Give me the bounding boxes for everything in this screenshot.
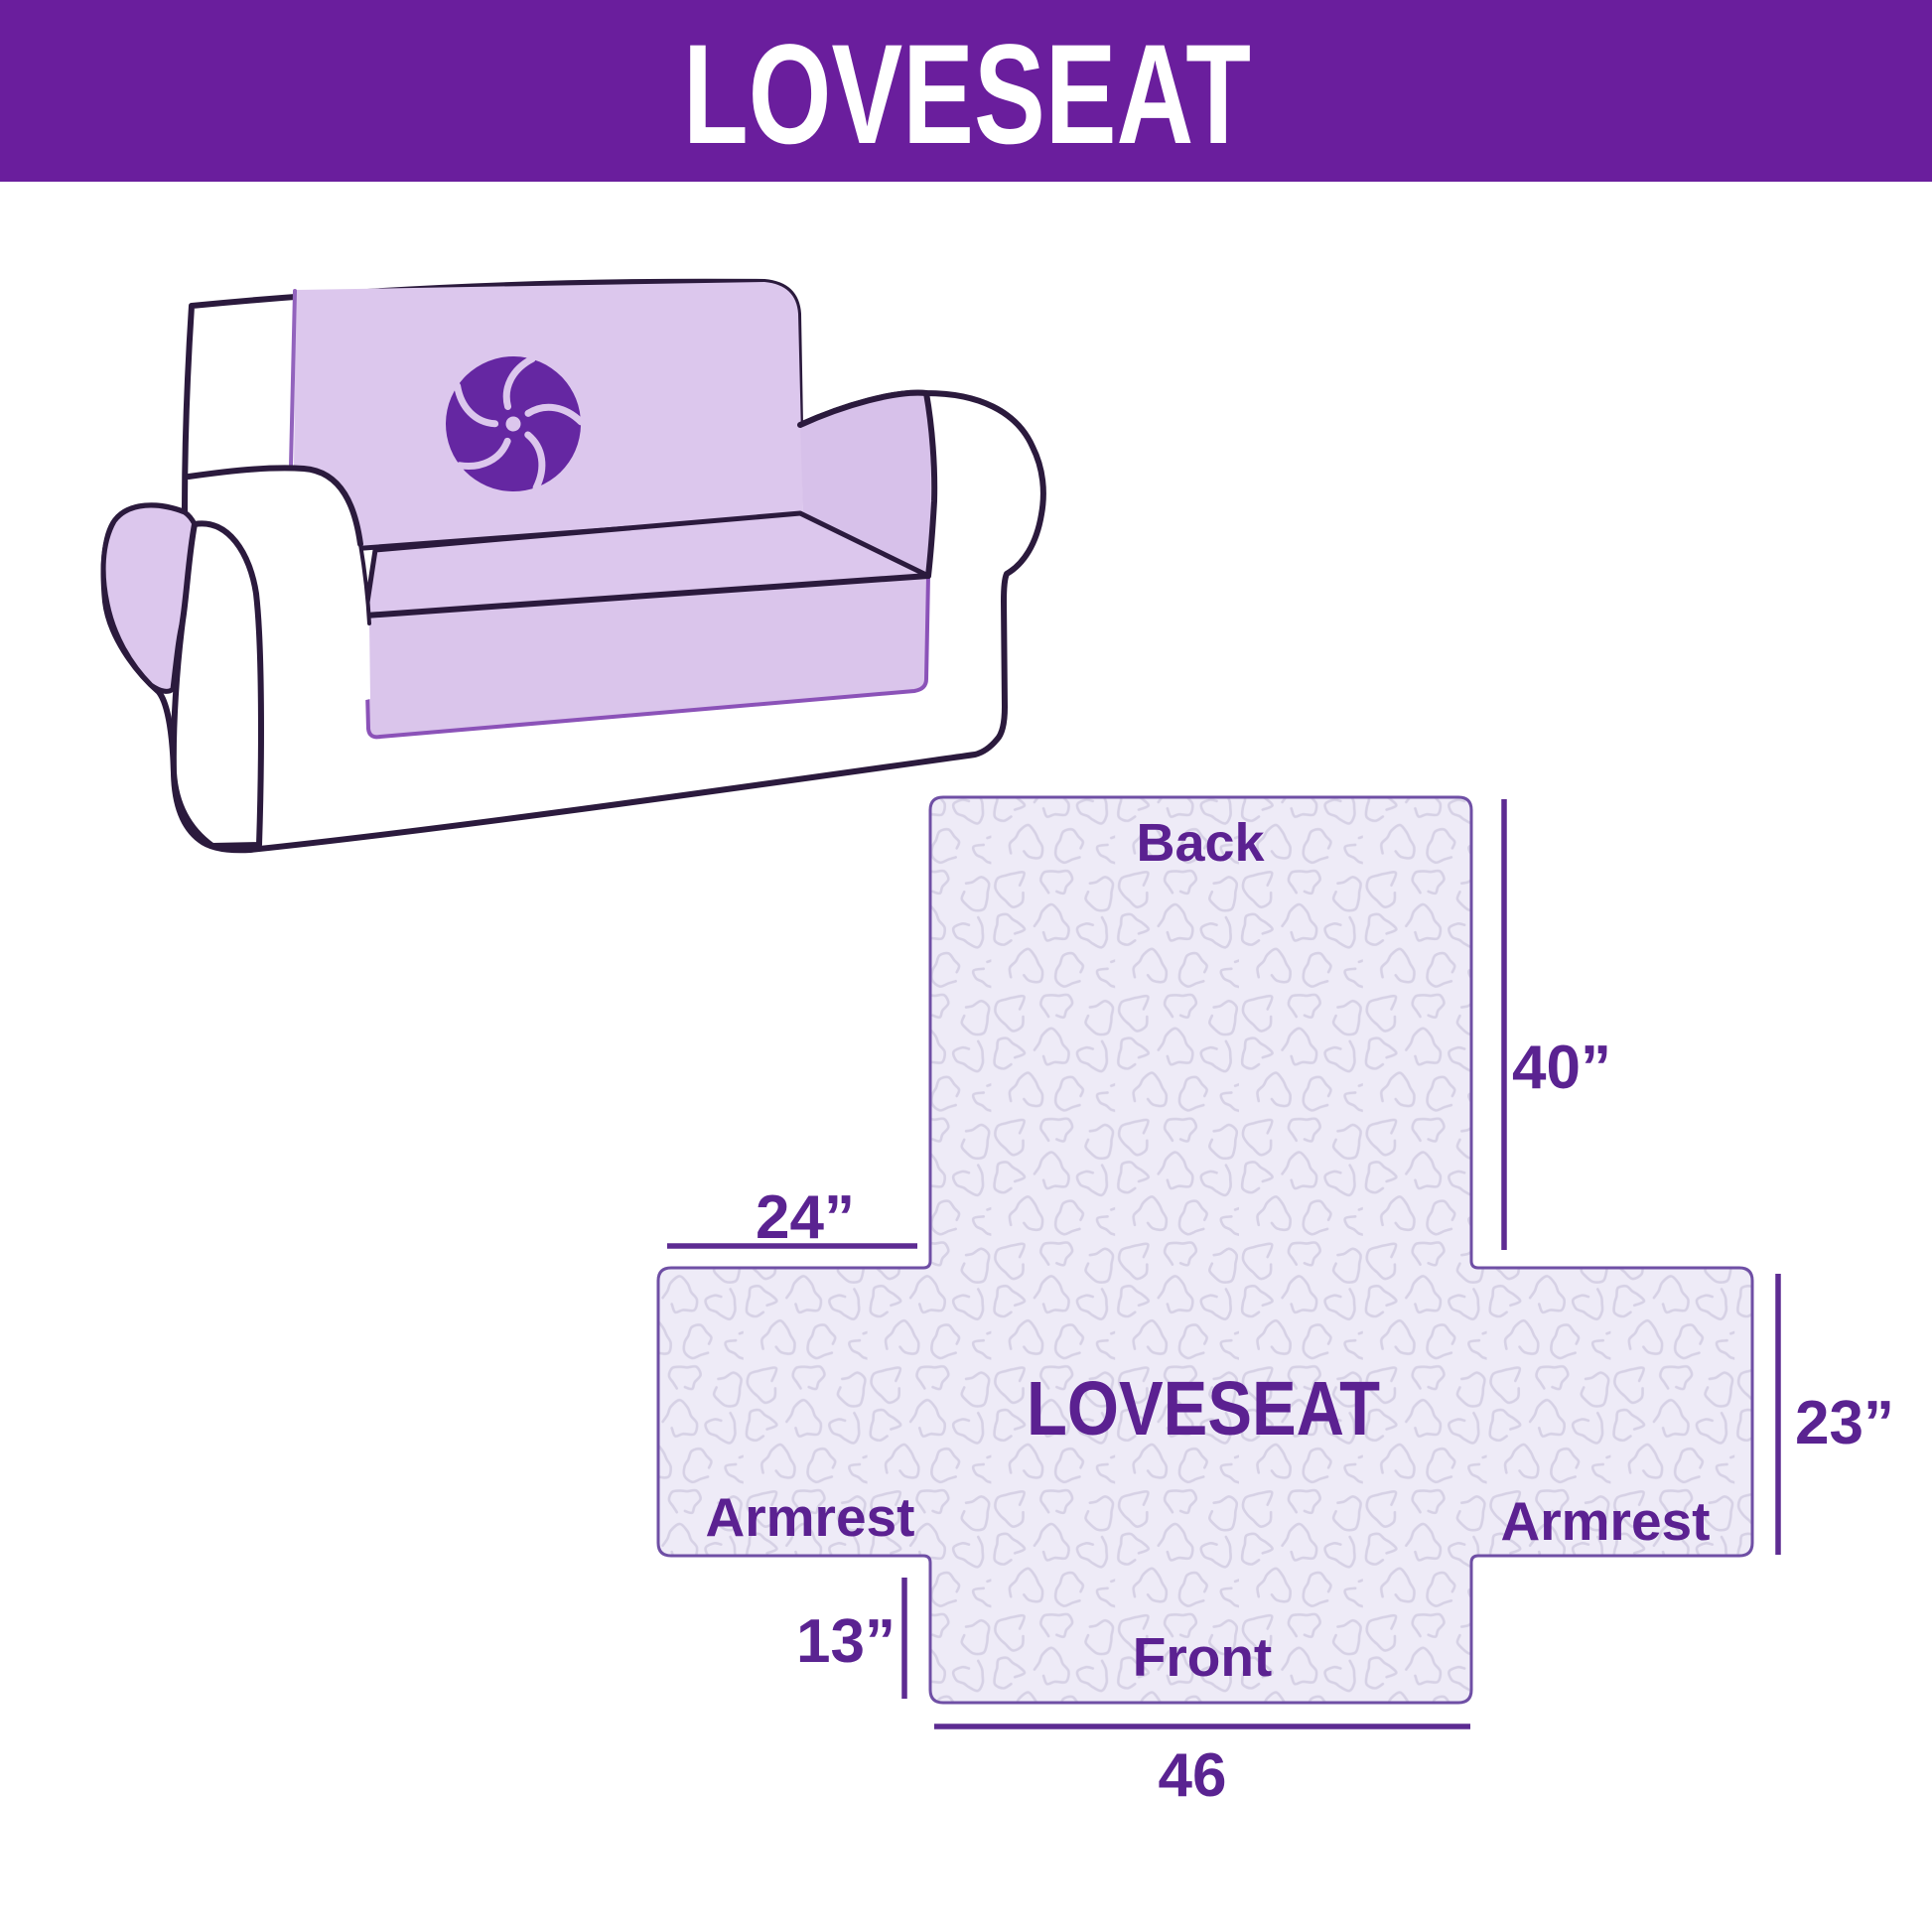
svg-text:Armrest: Armrest	[1501, 1490, 1711, 1552]
svg-text:23”: 23”	[1795, 1389, 1894, 1457]
svg-text:13”: 13”	[796, 1607, 896, 1676]
svg-text:40”: 40”	[1512, 1034, 1611, 1102]
svg-text:Front: Front	[1133, 1626, 1273, 1688]
svg-text:24”: 24”	[756, 1183, 855, 1252]
svg-text:LOVESEAT: LOVESEAT	[1027, 1366, 1380, 1451]
svg-text:Armrest: Armrest	[706, 1486, 915, 1548]
svg-text:46: 46	[1159, 1741, 1227, 1810]
svg-text:LOVESEAT: LOVESEAT	[683, 16, 1251, 174]
svg-text:Back: Back	[1136, 813, 1265, 873]
